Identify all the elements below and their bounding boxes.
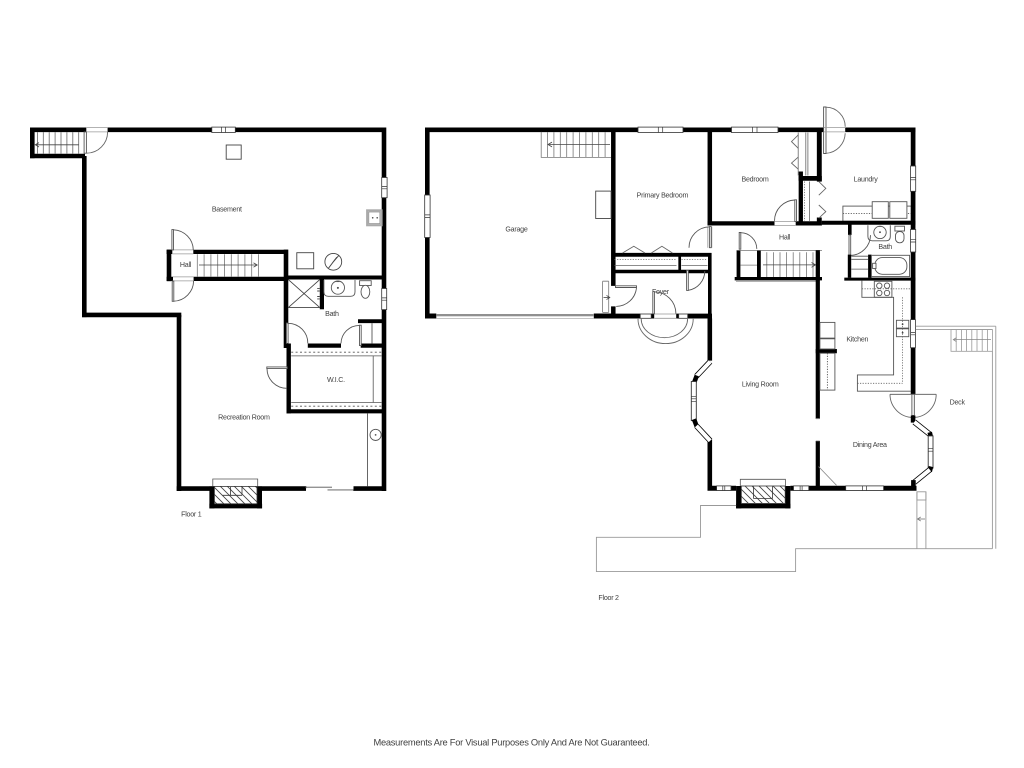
- svg-text:Measurements Are For Visual Pu: Measurements Are For Visual Purposes Onl…: [373, 738, 649, 748]
- svg-text:Primary Bedroom: Primary Bedroom: [637, 192, 689, 200]
- svg-text:Bedroom: Bedroom: [741, 176, 768, 184]
- svg-text:Floor 1: Floor 1: [181, 511, 202, 519]
- svg-text:Living Room: Living Room: [742, 381, 779, 389]
- svg-text:W.I.C.: W.I.C.: [327, 376, 345, 384]
- svg-text:Bath: Bath: [325, 310, 339, 318]
- svg-text:Bath: Bath: [878, 243, 892, 251]
- svg-text:Floor 2: Floor 2: [598, 594, 619, 602]
- svg-text:Deck: Deck: [950, 399, 966, 407]
- svg-text:Hall: Hall: [180, 261, 192, 269]
- svg-text:Dining Area: Dining Area: [853, 441, 887, 449]
- svg-text:Laundry: Laundry: [854, 176, 879, 184]
- svg-text:Basement: Basement: [212, 205, 242, 213]
- svg-text:Garage: Garage: [505, 226, 527, 234]
- svg-text:Recreation Room: Recreation Room: [218, 414, 270, 422]
- svg-text:Hall: Hall: [779, 234, 791, 242]
- svg-text:Kitchen: Kitchen: [846, 336, 868, 344]
